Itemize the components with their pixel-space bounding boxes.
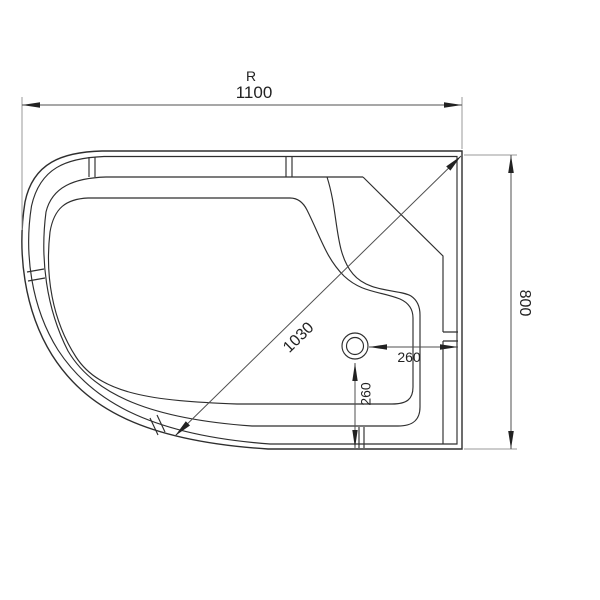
diagonal-arrow-bottom [175, 421, 190, 436]
drain-offset-v-arrow-top [352, 363, 357, 381]
depth-arrow-bottom [508, 431, 514, 449]
radius-label: R [246, 68, 256, 84]
flange-tick-left [27, 269, 45, 281]
diagonal-dimension-label: 1030 [280, 319, 317, 356]
drain-offset-v-arrow-bottom [352, 430, 357, 448]
drain-offset-h-arrow-right [440, 344, 458, 349]
flange-tick-top-left [89, 157, 95, 177]
flange-tick-top-right [286, 157, 292, 177]
technical-drawing-canvas: R 1100 800 1030 260 260 [0, 0, 600, 600]
drain-offset-h-arrow-left [369, 344, 387, 349]
flange-tick-bottom [359, 427, 364, 448]
depth-dimension-label: 800 [516, 290, 533, 317]
width-arrow-right [444, 102, 462, 108]
shower-tray-plan-drawing: R 1100 800 1030 260 260 [0, 0, 600, 600]
seat-edge-tab-marks [443, 332, 458, 341]
diagonal-arrow-top [446, 156, 461, 171]
width-dimension-label: 1100 [236, 83, 273, 102]
depth-arrow-top [508, 155, 514, 173]
tray-rim-inner-line [29, 157, 457, 445]
drain-offset-v-label: 260 [358, 382, 374, 406]
basin-floor-outline [48, 198, 413, 404]
width-arrow-left [22, 102, 40, 108]
drain-outer-circle [342, 333, 368, 359]
drain-offset-h-label: 260 [397, 349, 421, 365]
drain-inner-circle [347, 338, 364, 355]
